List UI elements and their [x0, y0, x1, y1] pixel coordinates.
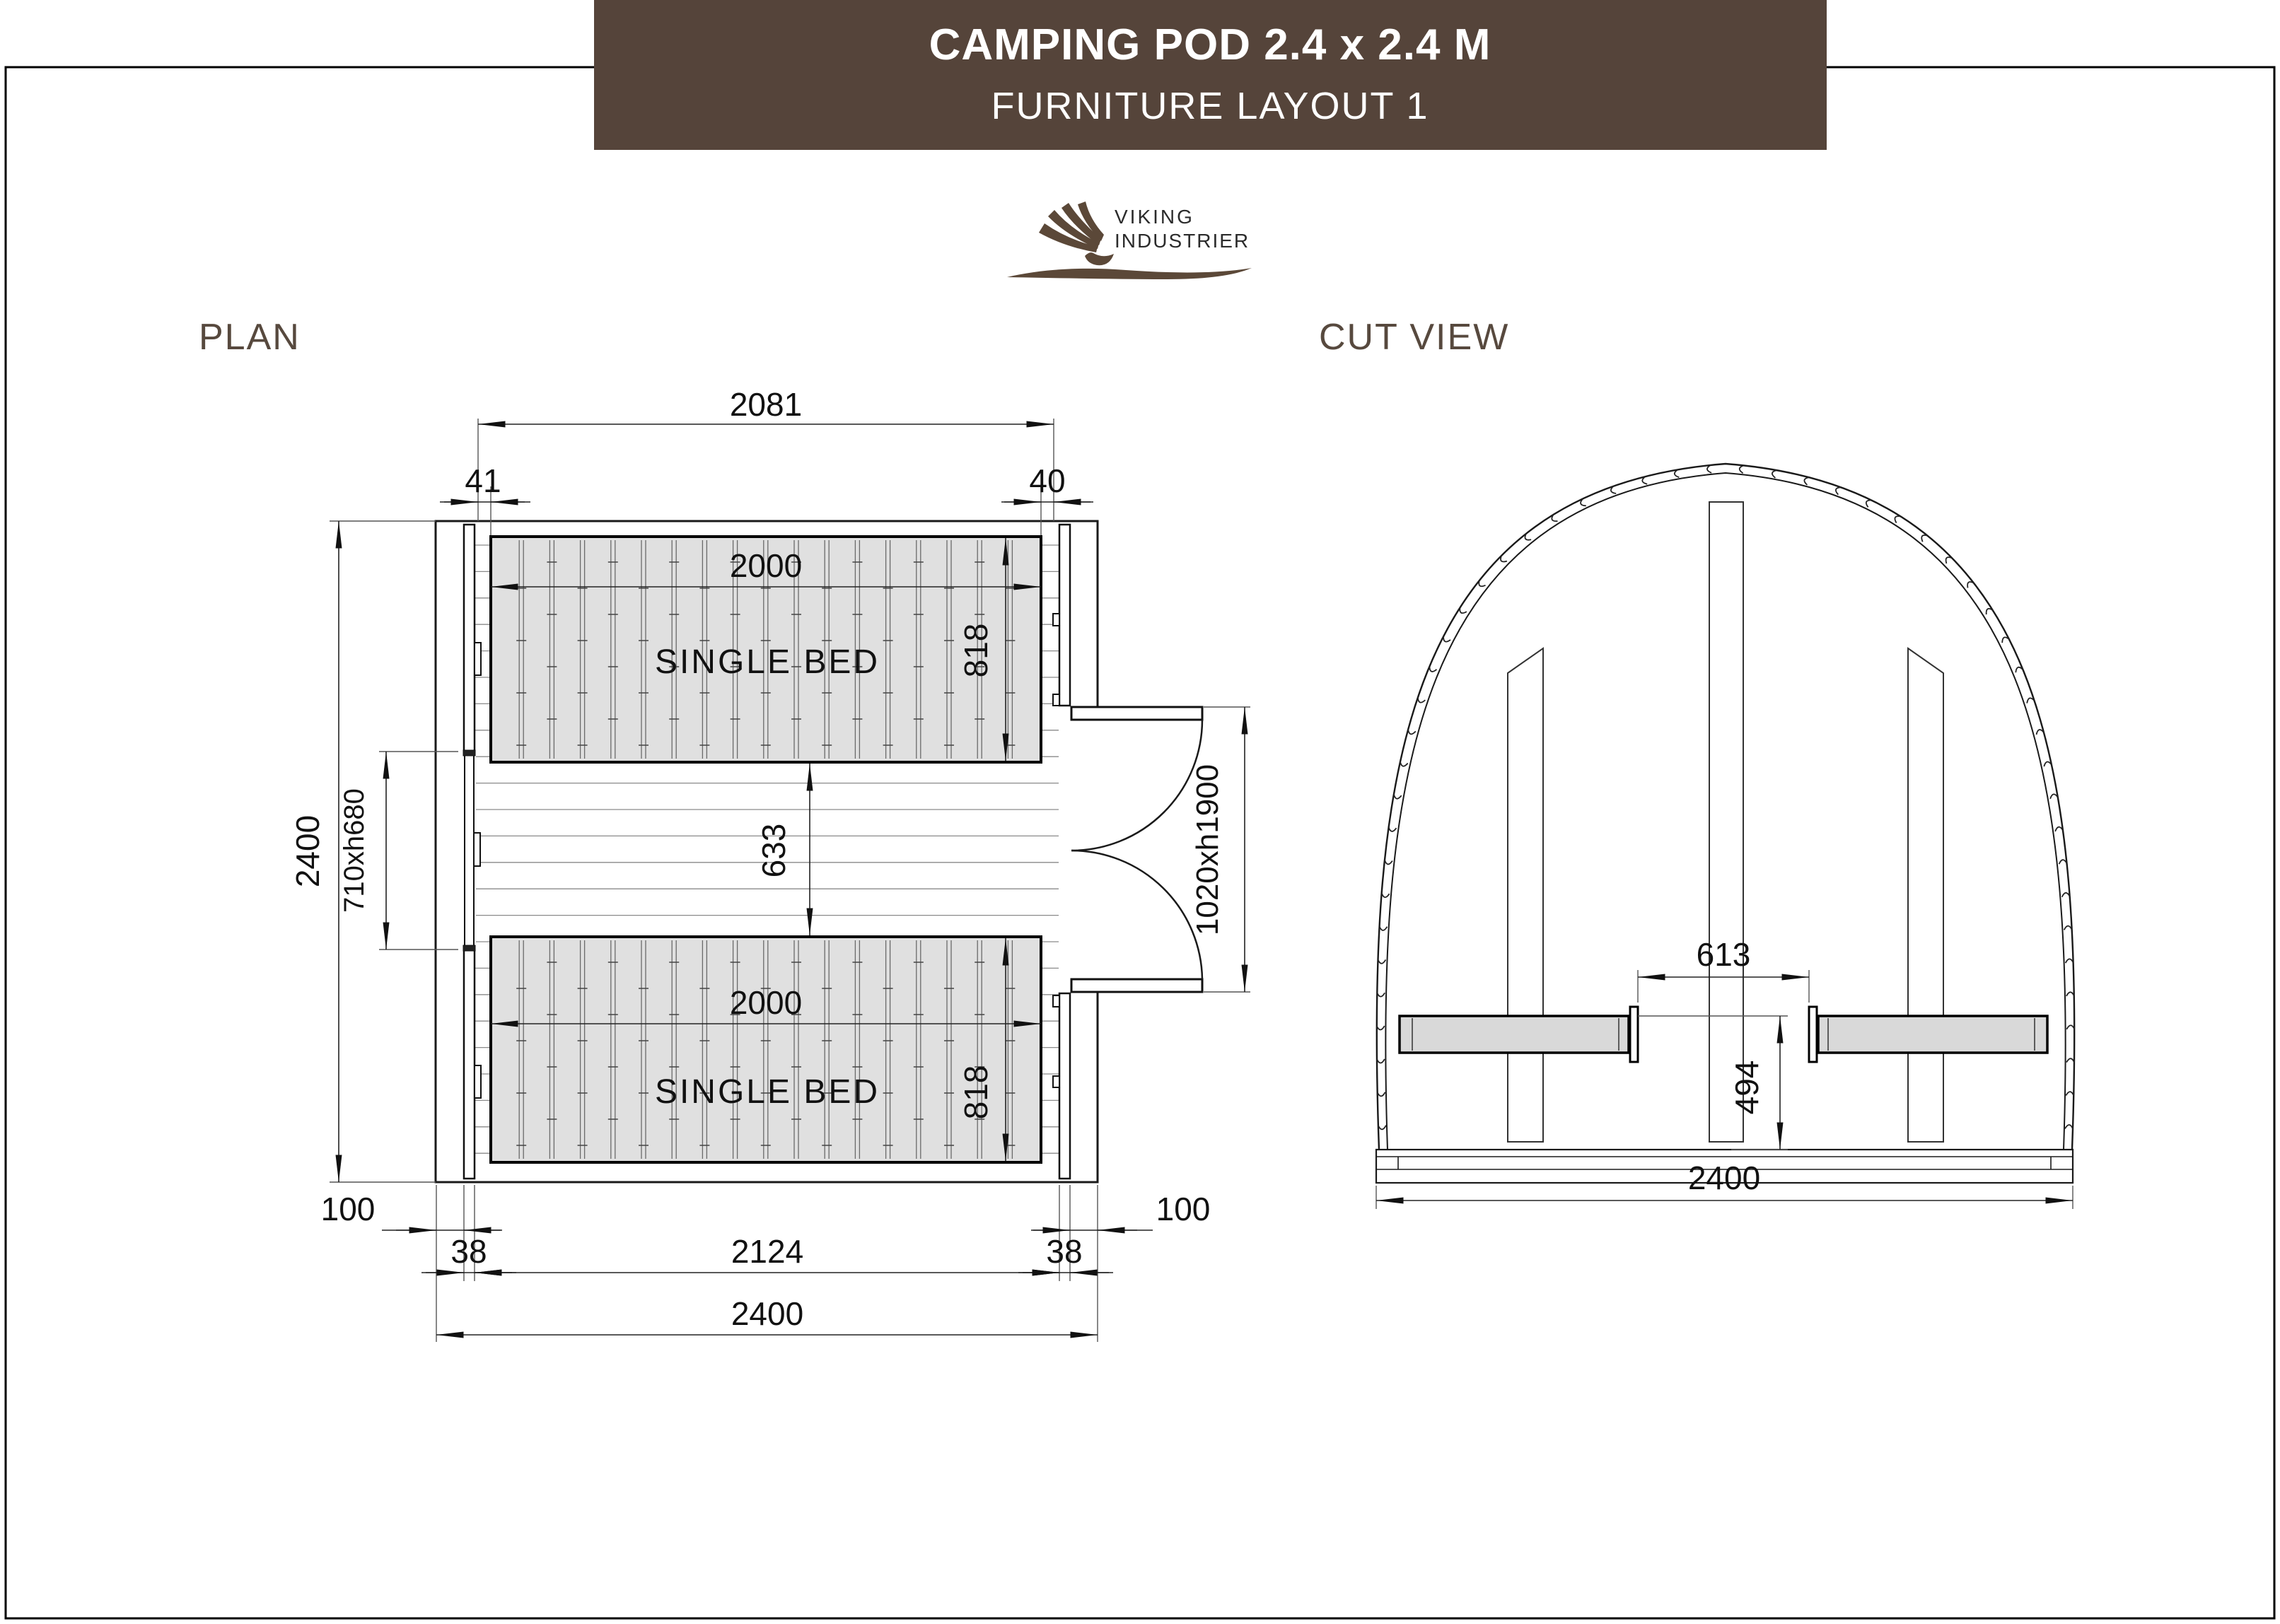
door-hinge-tab	[1053, 995, 1059, 1007]
dim-wall-right: 38	[1046, 1233, 1082, 1270]
bed-bottom-label: SINGLE BED	[655, 1073, 880, 1111]
dim-bed-width-top: 818	[958, 624, 994, 678]
door-leaf-bottom	[1071, 979, 1202, 992]
page-subtitle: FURNITURE LAYOUT 1	[991, 85, 1429, 127]
dim-platform-height: 494	[1728, 1061, 1765, 1115]
right-platform-endcap	[1809, 1007, 1817, 1062]
door-hinge-tab	[1053, 614, 1059, 626]
dim-wall-left: 38	[450, 1233, 487, 1270]
dim-bed-width-bottom: 818	[958, 1065, 994, 1120]
left-stud	[1508, 648, 1543, 1142]
center-stud	[1709, 502, 1743, 1142]
dim-interior-width: 2124	[731, 1233, 803, 1270]
dim-between-beds: 633	[755, 824, 792, 878]
title-banner: CAMPING POD 2.4 x 2.4 M FURNITURE LAYOUT…	[594, 0, 1827, 150]
dim-cut-width-total: 2400	[1688, 1159, 1760, 1196]
single-bed-bottom	[491, 937, 1041, 1162]
window-handle	[474, 833, 480, 866]
bed-top-label: SINGLE BED	[655, 643, 880, 681]
door-swing-arc-bottom	[1071, 851, 1202, 979]
dim-bed-length-bottom: 2000	[730, 984, 802, 1021]
right-bed-platform	[1818, 1016, 2047, 1053]
dim-beds-gap: 613	[1697, 936, 1751, 973]
drawing-sheet: PLAN	[0, 0, 2280, 1624]
logo-line1: VIKING	[1115, 206, 1194, 228]
right-stud	[1908, 648, 1943, 1142]
plan-double-door	[1071, 707, 1202, 992]
dim-window: 710xh680	[339, 788, 370, 913]
left-platform-endcap	[1630, 1007, 1638, 1062]
cut-view-title: CUT VIEW	[1319, 317, 1509, 358]
cut-view: CUT VIEW	[1319, 317, 2074, 1209]
left-bed-platform	[1400, 1016, 1629, 1053]
plan-window	[462, 750, 480, 951]
dim-width-total: 2400	[731, 1295, 803, 1332]
dim-gap-right: 40	[1029, 462, 1065, 499]
brand-logo: VIKING INDUSTRIER	[1007, 201, 1252, 279]
dim-height-total: 2400	[289, 815, 326, 887]
dim-overall-top: 2081	[730, 386, 802, 423]
wall-fitting-tab	[475, 643, 481, 675]
page-title: CAMPING POD 2.4 x 2.4 M	[929, 21, 1491, 69]
door-hinge-tab	[1053, 694, 1059, 706]
door-leaf-top	[1071, 707, 1202, 720]
right-wall-panel-lower	[1059, 993, 1070, 1179]
plan-dimensions: 2081 41 40 2400 710xh680 2000 818 633	[289, 386, 1250, 1342]
plan-view: PLAN	[199, 317, 1250, 1342]
logo-line2: INDUSTRIER	[1115, 230, 1250, 252]
dim-door: 1020xh1900	[1190, 764, 1225, 935]
dim-bed-length-top: 2000	[730, 547, 802, 584]
door-swing-arc-top	[1071, 720, 1202, 851]
dim-offset-left: 100	[321, 1191, 376, 1227]
right-wall-panel-upper	[1059, 525, 1070, 706]
plan-view-title: PLAN	[199, 317, 301, 358]
dim-offset-right: 100	[1156, 1191, 1211, 1227]
wall-fitting-tab	[475, 1065, 481, 1098]
dim-gap-left: 41	[465, 462, 501, 499]
door-hinge-tab	[1053, 1076, 1059, 1087]
